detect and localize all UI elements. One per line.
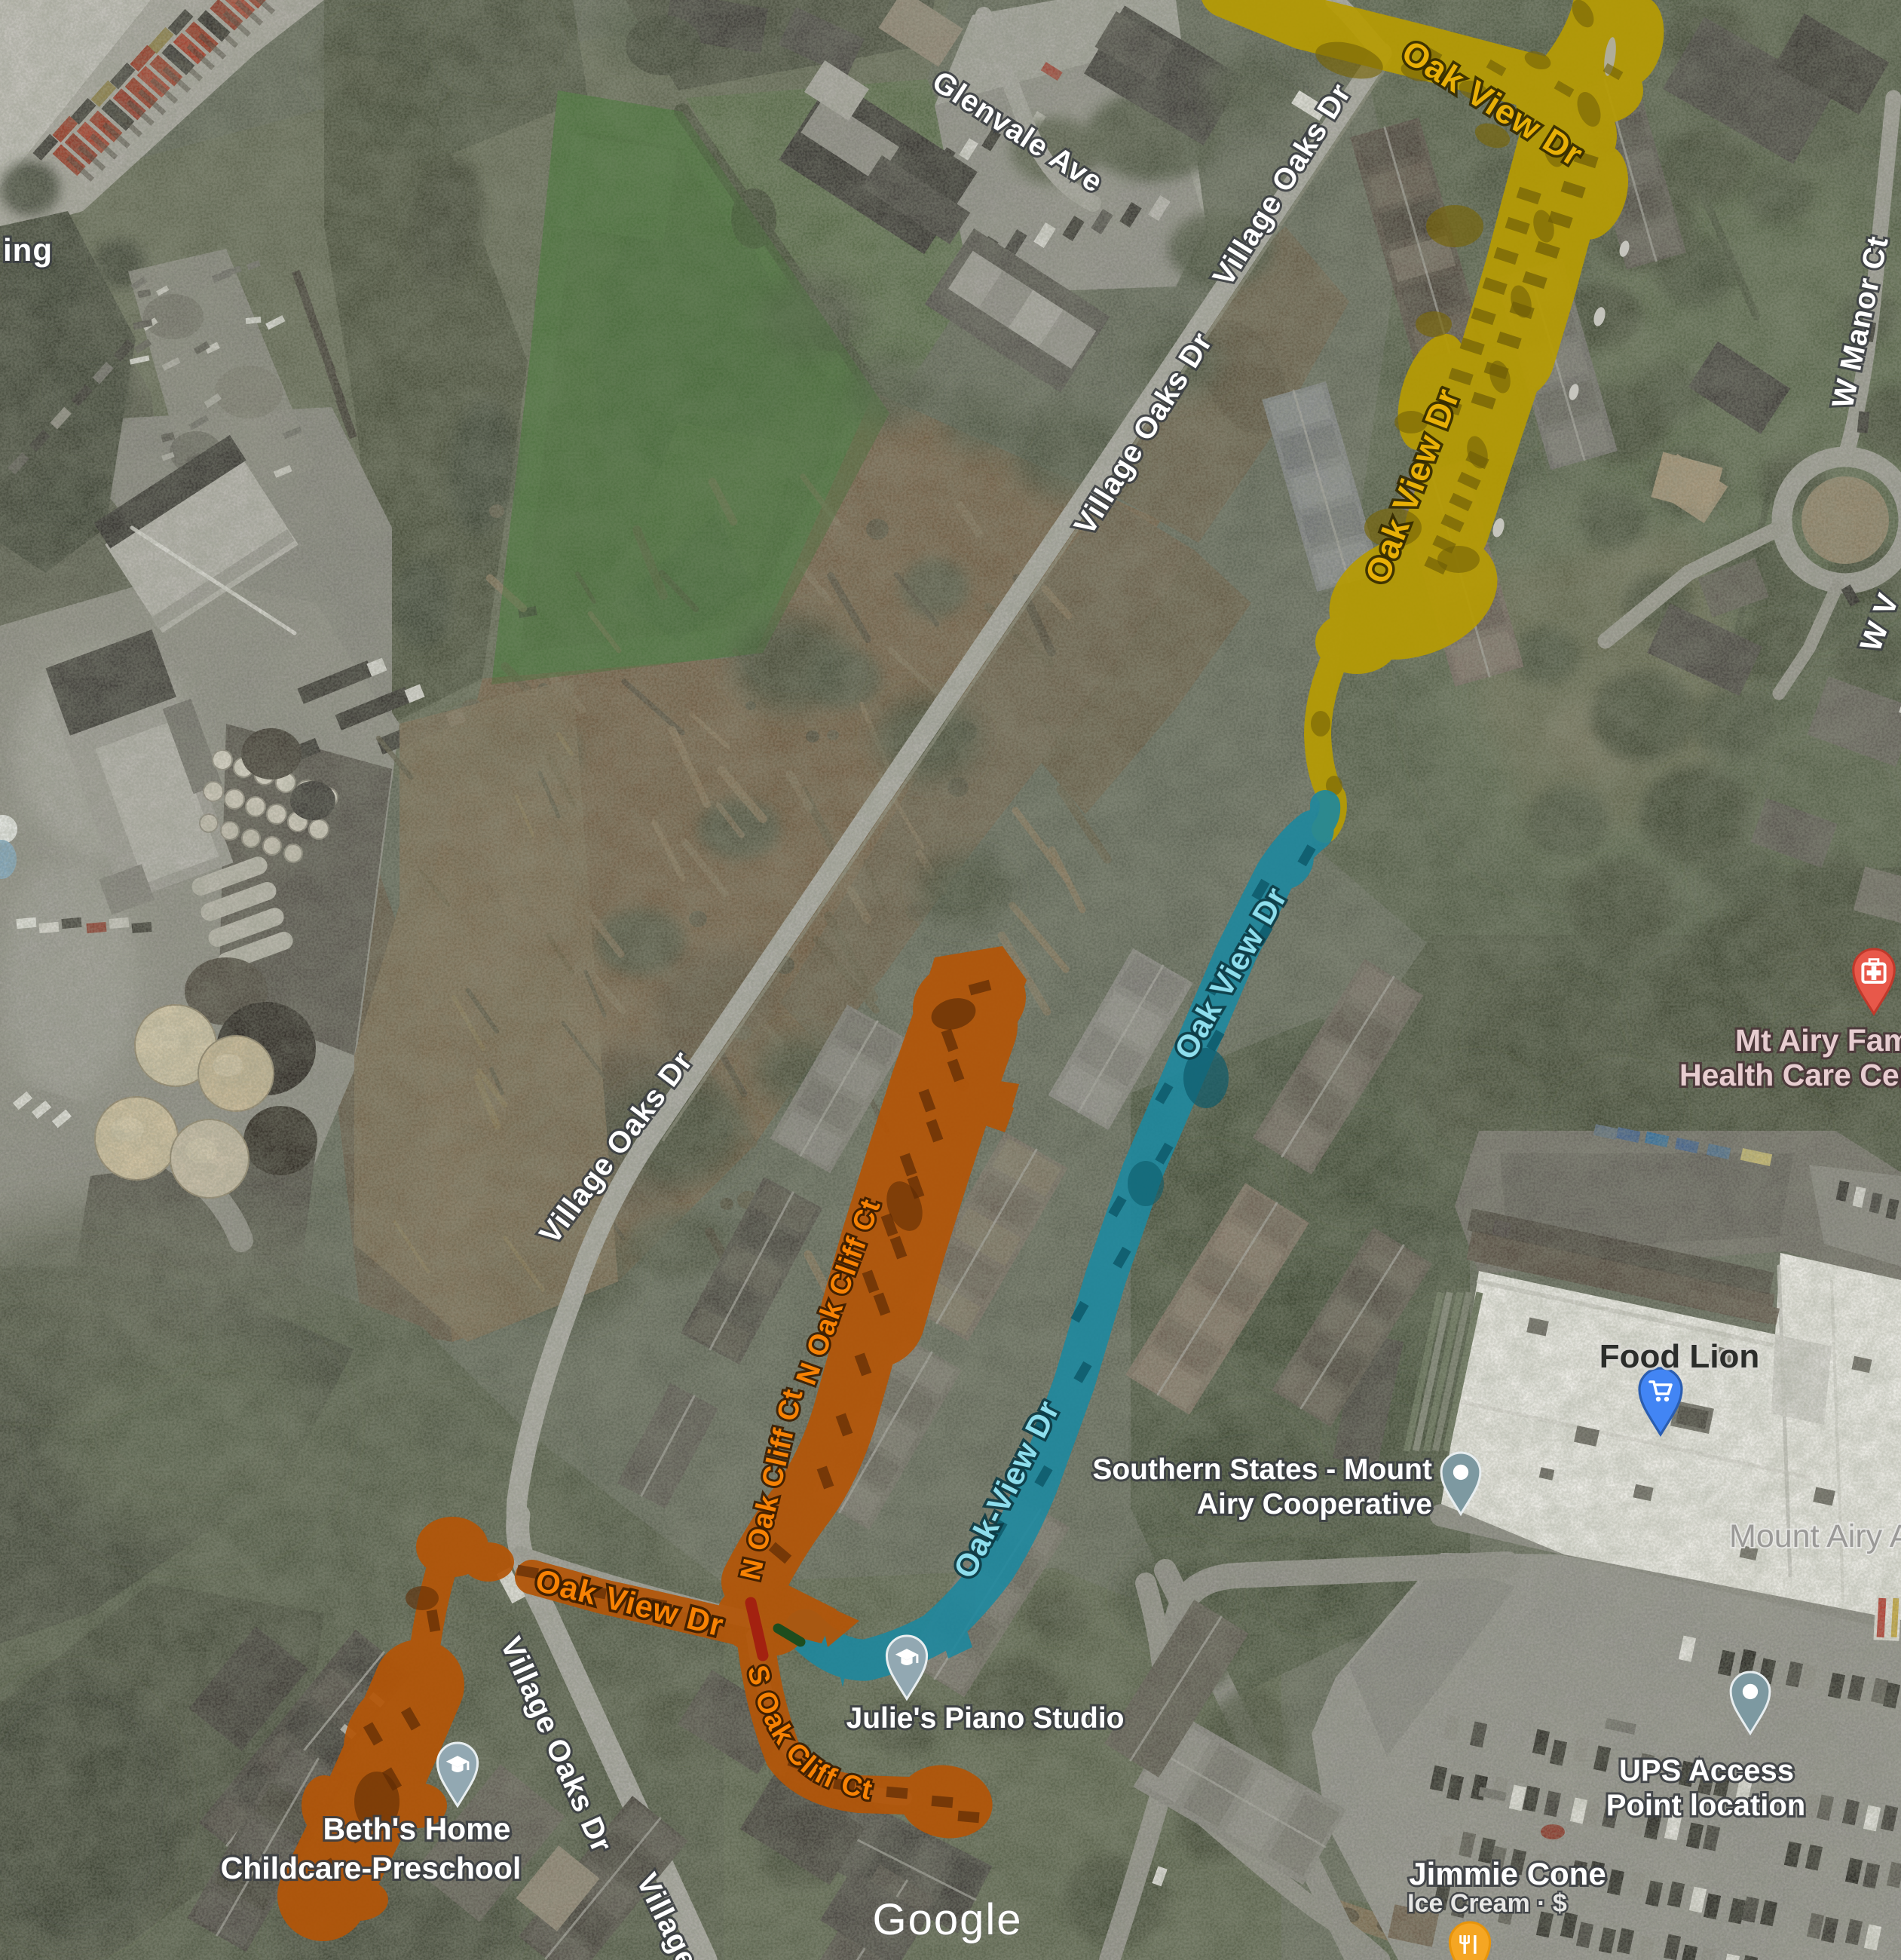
- svg-text:Airy Cooperative: Airy Cooperative: [1197, 1488, 1432, 1521]
- svg-text:Southern States - Mount: Southern States - Mount: [1092, 1453, 1432, 1486]
- svg-text:Childcare-Preschool: Childcare-Preschool: [221, 1851, 522, 1885]
- svg-text:Julie's Piano Studio: Julie's Piano Studio: [846, 1702, 1125, 1735]
- svg-text:Google: Google: [872, 1895, 1022, 1944]
- svg-text:Jimmie Cone: Jimmie Cone: [1409, 1856, 1606, 1891]
- svg-text:ing: ing: [3, 232, 53, 268]
- svg-text:UPS Access: UPS Access: [1619, 1754, 1794, 1787]
- svg-text:Mt Airy Family: Mt Airy Family: [1735, 1023, 1901, 1058]
- svg-text:Health Care Center: Health Care Center: [1679, 1058, 1901, 1092]
- svg-text:Beth's Home: Beth's Home: [323, 1811, 511, 1846]
- svg-text:Ice Cream · $: Ice Cream · $: [1407, 1889, 1567, 1918]
- svg-text:Mount Airy Ac: Mount Airy Ac: [1729, 1518, 1901, 1554]
- svg-text:Food Lion: Food Lion: [1599, 1338, 1760, 1375]
- svg-text:Point location: Point location: [1606, 1789, 1805, 1822]
